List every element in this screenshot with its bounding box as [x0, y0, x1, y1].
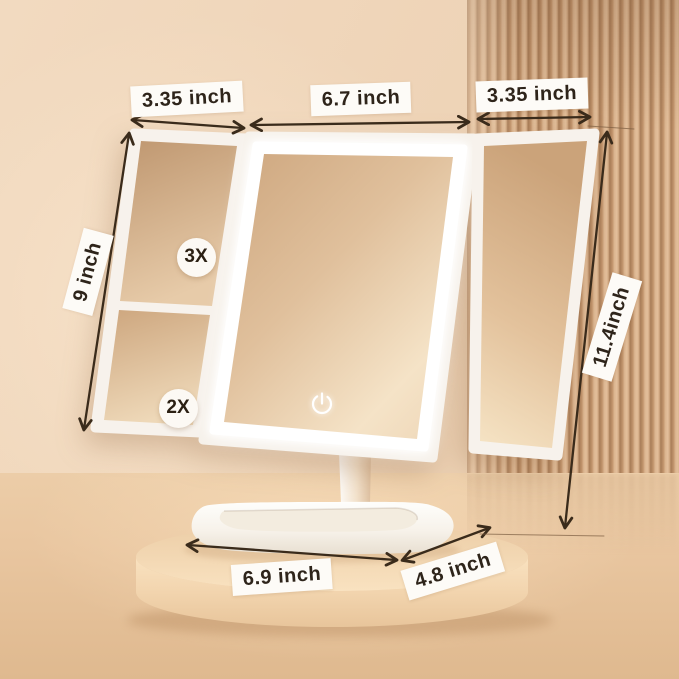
product-photo-stage: 3.35 inch 6.7 inch 3.35 inch 9 inch 11.4…: [0, 0, 679, 679]
storage-base: [192, 502, 454, 554]
center-panel-glass: [224, 154, 453, 439]
base-tray-recess: [220, 508, 418, 532]
badge-2x-magnification: 2X: [159, 389, 198, 428]
arrow-right-panel-width: [479, 117, 589, 119]
label-center-panel-width: 6.7 inch: [310, 82, 412, 116]
arrow-center-panel-width: [252, 122, 468, 125]
extension-line-bottom: [480, 534, 604, 536]
arrow-left-panel-width: [133, 120, 243, 128]
mirror-stand-neck: [339, 452, 371, 503]
badge-3x-magnification: 3X: [177, 238, 216, 277]
label-right-panel-width: 3.35 inch: [475, 78, 588, 113]
label-left-panel-width: 3.35 inch: [130, 81, 244, 118]
